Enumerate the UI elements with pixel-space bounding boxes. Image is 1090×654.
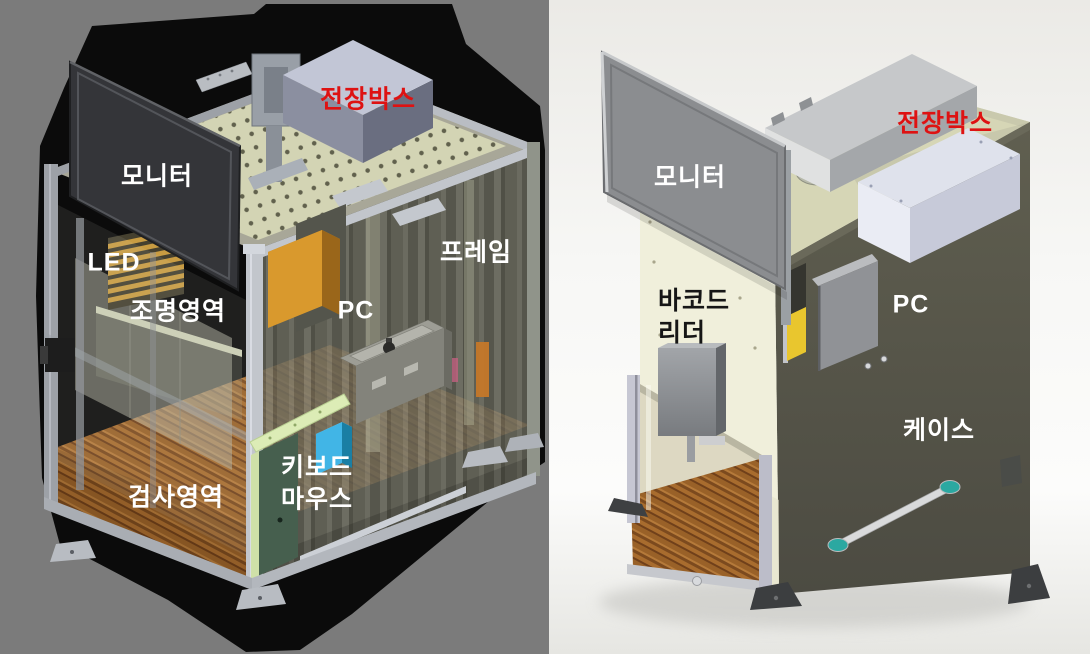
left-machine-illustration [0, 0, 549, 654]
right-machine-illustration [549, 0, 1090, 654]
right-render-panel: 모니터 전장박스 바코드 리더 PC 케이스 [549, 0, 1090, 654]
figure-two-render-comparison: 전장박스 모니터 LED 조명영역 PC 프레임 검사영역 키보드 마우스 [0, 0, 1090, 654]
left-render-panel: 전장박스 모니터 LED 조명영역 PC 프레임 검사영역 키보드 마우스 [0, 0, 549, 654]
